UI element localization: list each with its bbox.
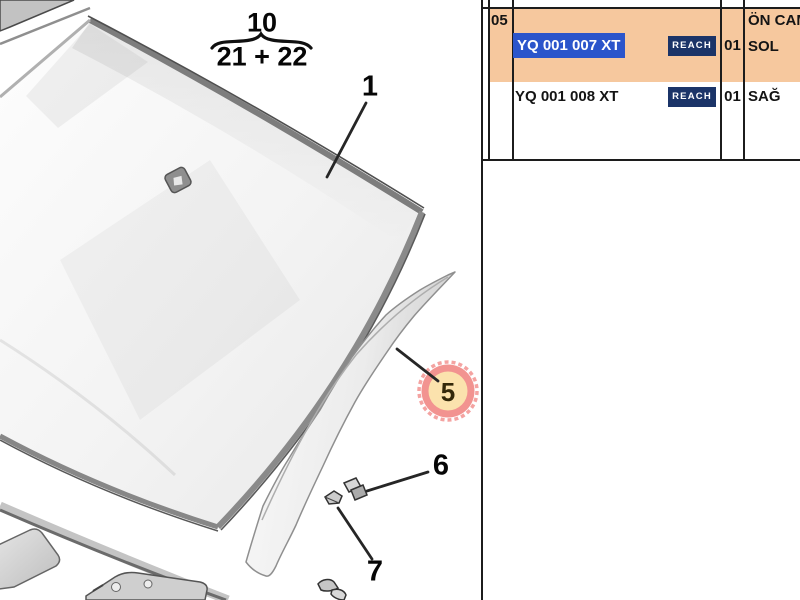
- callout-1-windshield[interactable]: 1: [362, 73, 378, 102]
- cowl-bracket: [86, 573, 207, 600]
- callout-7-clip[interactable]: 7: [367, 558, 383, 587]
- clip-7: [325, 491, 342, 504]
- callout-6-clip[interactable]: 6: [433, 452, 449, 481]
- assembly-ref-numerator: 10: [247, 10, 277, 37]
- column-line-qty: [720, 0, 722, 161]
- side-cell-left: SOL: [748, 36, 779, 58]
- clip-6: [344, 478, 367, 500]
- corner-plate: [0, 529, 60, 590]
- column-line-desc: [743, 0, 745, 161]
- part-number-cell-selected[interactable]: YQ 001 007 XT: [513, 33, 625, 58]
- page-frame-line: [481, 0, 483, 600]
- item-number-cell: 05: [491, 10, 508, 32]
- windshield-diagram: [0, 0, 483, 600]
- column-line-item: [512, 0, 514, 161]
- group-description-cell: ÖN CAM: [748, 10, 800, 32]
- assembly-ref-denominator: 21 + 22: [217, 44, 308, 71]
- reach-badge[interactable]: REACH: [668, 36, 716, 56]
- row-line-top: [481, 7, 800, 9]
- reach-badge[interactable]: REACH: [668, 87, 716, 107]
- clip-bottom: [318, 580, 346, 600]
- callout-5-pillar-trim[interactable]: 5: [441, 379, 455, 405]
- quantity-cell: 01: [721, 86, 744, 108]
- row-line-bottom: [481, 159, 800, 161]
- page: { "diagram": { "assembly_ref": { "numera…: [0, 0, 800, 600]
- side-cell-right: SAĞ: [748, 86, 781, 108]
- quantity-cell: 01: [721, 35, 744, 57]
- part-number-cell[interactable]: YQ 001 008 XT: [515, 86, 618, 108]
- table-border-left: [488, 0, 490, 161]
